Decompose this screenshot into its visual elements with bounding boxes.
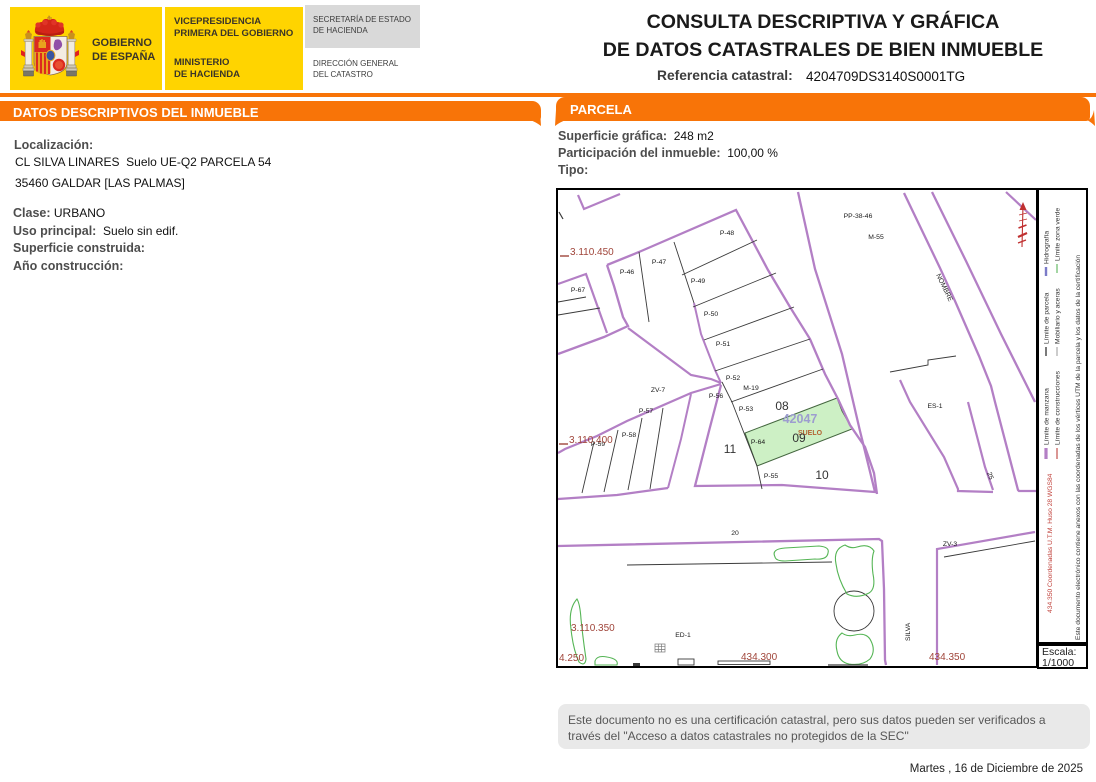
svg-text:4.250: 4.250 (559, 653, 584, 664)
svg-text:P-52: P-52 (726, 375, 741, 382)
svg-text:SILVA: SILVA (905, 622, 912, 641)
svg-text:11: 11 (724, 442, 737, 456)
svg-text:P-53: P-53 (739, 406, 754, 413)
svg-text:Mobiliario y aceras: Mobiliario y aceras (1055, 288, 1062, 344)
svg-text:3.110.350: 3.110.350 (571, 623, 615, 634)
svg-text:P-47: P-47 (652, 259, 667, 266)
svg-text:434.350: 434.350 (929, 652, 966, 663)
svg-text:ZV-3: ZV-3 (943, 541, 958, 548)
svg-text:3.110.400: 3.110.400 (569, 435, 613, 446)
svg-text:Límite zona verde: Límite zona verde (1055, 208, 1062, 261)
svg-text:Límite de construcciones: Límite de construcciones (1055, 370, 1062, 445)
svg-text:P-57: P-57 (639, 408, 654, 415)
svg-text:M-55: M-55 (868, 234, 884, 241)
svg-text:ES-1: ES-1 (927, 403, 942, 410)
svg-text:P-46: P-46 (620, 269, 635, 276)
svg-text:M-19: M-19 (743, 385, 759, 392)
svg-text:ED-1: ED-1 (675, 632, 691, 639)
svg-text:P-51: P-51 (716, 341, 731, 348)
svg-text:Hidrografía: Hidrografía (1044, 231, 1051, 264)
svg-text:Límite de parcela: Límite de parcela (1044, 292, 1051, 344)
svg-text:P-48: P-48 (720, 230, 735, 237)
svg-text:P-55: P-55 (764, 473, 779, 480)
svg-text:P-50: P-50 (704, 311, 719, 318)
svg-text:Límite de manzana: Límite de manzana (1044, 388, 1051, 445)
svg-text:P-64: P-64 (751, 439, 766, 446)
svg-text:P-58: P-58 (622, 432, 637, 439)
svg-text:08: 08 (775, 399, 789, 413)
svg-text:434.350 Coordenadas U.T.M. Hus: 434.350 Coordenadas U.T.M. Huso 28 WGS84 (1047, 473, 1054, 613)
svg-text:P-49: P-49 (691, 278, 706, 285)
svg-text:42047: 42047 (783, 412, 818, 426)
svg-text:PP-38-46: PP-38-46 (844, 213, 873, 220)
svg-text:P-56: P-56 (709, 393, 724, 400)
svg-text:3.110.450: 3.110.450 (570, 247, 614, 258)
svg-text:P-67: P-67 (571, 287, 586, 294)
svg-text:25: 25 (985, 471, 994, 481)
svg-text:10: 10 (815, 468, 829, 482)
svg-text:09: 09 (792, 431, 806, 445)
svg-text:20: 20 (731, 530, 739, 537)
svg-text:ZV-7: ZV-7 (651, 387, 666, 394)
svg-text:Este documento electrónico con: Este documento electrónico contiene anex… (1075, 255, 1082, 640)
svg-text:434.300: 434.300 (741, 652, 778, 663)
